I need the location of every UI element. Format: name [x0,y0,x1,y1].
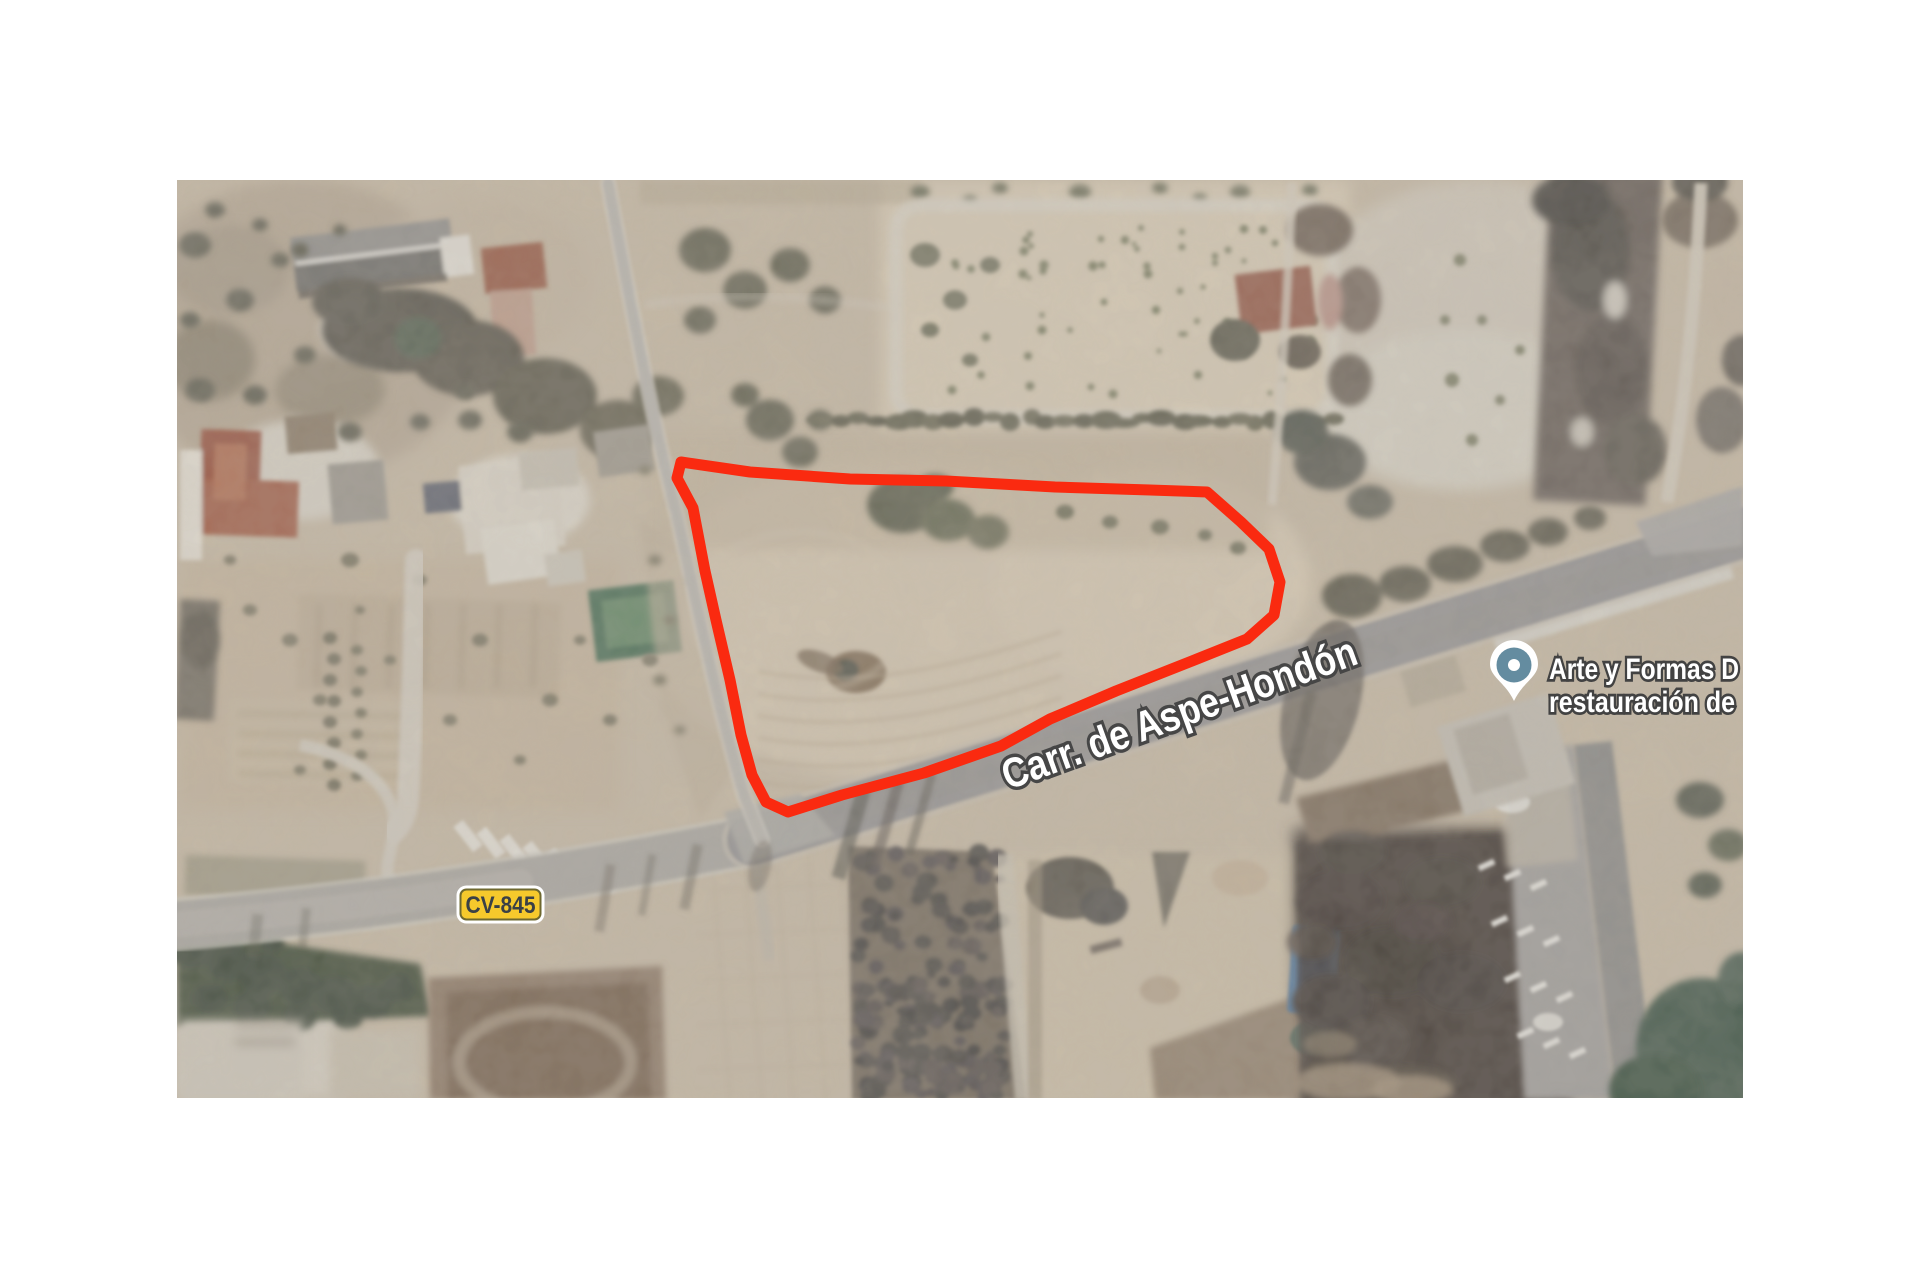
svg-text:restauración de: restauración de [1549,686,1735,719]
svg-text:CV-845: CV-845 [466,892,536,919]
svg-text:Arte y Formas D: Arte y Formas D [1549,653,1739,686]
